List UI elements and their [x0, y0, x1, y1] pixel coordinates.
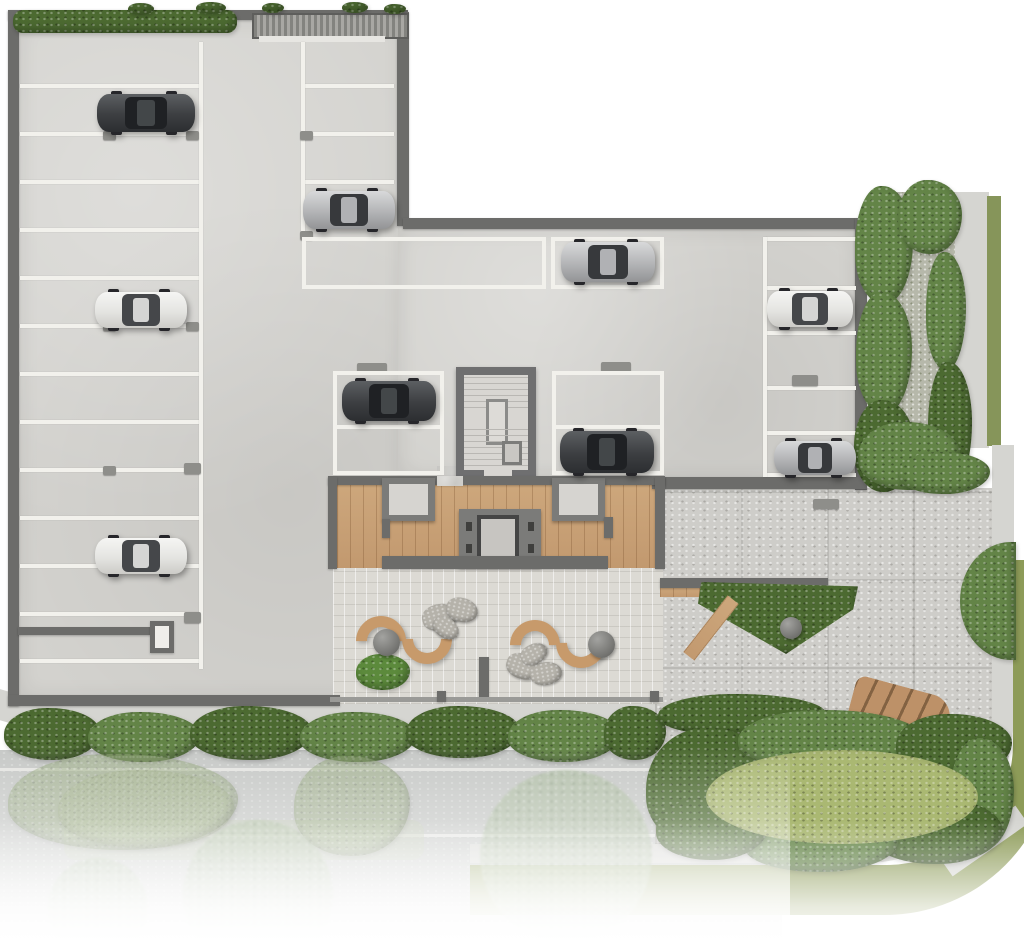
wall-leftwing-south: [8, 695, 340, 706]
car-8: [767, 289, 853, 329]
hedge-4: [262, 3, 284, 13]
hedge-18: [300, 712, 416, 762]
street-tree-2: [480, 770, 652, 942]
wall-rightwing-south: [652, 477, 867, 489]
left-wing-stripes-5: [20, 276, 201, 280]
hedge-3: [196, 2, 226, 14]
mid-column-stripes-1: [305, 84, 394, 88]
car-4: [303, 189, 395, 231]
vestibule-left: [382, 478, 435, 521]
vestibule-right-interior: [559, 484, 598, 515]
deck-east-wall: [655, 477, 665, 569]
stall-end-line-3: [763, 237, 767, 477]
elevator-shaft: [477, 515, 519, 561]
car-7: [560, 429, 654, 475]
left-wing-stripes-3: [20, 180, 201, 184]
courtyard-fence: [330, 697, 663, 702]
car-6: [561, 240, 655, 284]
stair-core: [456, 367, 536, 478]
hedge-11: [926, 252, 966, 370]
hedge-30: [706, 750, 978, 844]
hedge-5: [342, 2, 368, 13]
deck-west-wall: [328, 477, 337, 569]
hedge-33: [294, 756, 410, 856]
stall-box-divider: [337, 425, 440, 429]
hedge-19: [406, 706, 520, 758]
fence-post-1: [437, 691, 446, 702]
east-grass-strip: [987, 196, 1001, 446]
hedge-9: [856, 292, 912, 414]
car-roof: [808, 447, 823, 470]
wheel-stop-5: [103, 466, 116, 475]
hedge-8: [898, 180, 962, 254]
vestibule-left-interior: [389, 484, 428, 515]
car-roof: [599, 438, 616, 466]
hedge-2: [128, 3, 154, 15]
left-wing-stripes-7: [20, 372, 201, 376]
car-1: [97, 92, 195, 134]
wall-stub-courtyard: [479, 657, 489, 699]
left-wing-stripes-1: [20, 84, 201, 88]
entry-ramp-threshold: [259, 36, 385, 42]
car-roof: [133, 544, 150, 568]
round-planter-1: [373, 629, 400, 656]
car-roof: [600, 249, 617, 275]
wall-west: [8, 10, 19, 706]
wheel-stop-6: [184, 463, 201, 474]
hedge-14: [898, 452, 990, 494]
round-planter-3: [780, 617, 802, 639]
hedge-15: [4, 708, 100, 760]
car-roof: [802, 297, 818, 321]
left-wing-stripes-12: [20, 612, 201, 616]
mid-column-stripes-2: [305, 132, 394, 136]
hedge-34: [58, 770, 234, 848]
lobby-south-wall-bar: [382, 556, 608, 569]
car-9: [774, 439, 856, 477]
fence-post-2: [650, 691, 659, 702]
vestibule-left-fin: [382, 519, 390, 538]
vestibule-right-fin: [604, 517, 613, 538]
vestibule-right: [552, 478, 605, 521]
hedge-17: [190, 706, 312, 760]
car-roof: [133, 298, 150, 322]
car-roof: [137, 100, 155, 125]
wheel-stop-13: [813, 499, 839, 509]
wheel-stop-7: [184, 612, 201, 623]
wheel-stop-12: [792, 375, 818, 386]
hedge-6: [384, 4, 406, 14]
right-column-stripes-5: [766, 431, 856, 435]
elevator-closet-dot: [466, 544, 472, 553]
car-3: [95, 536, 187, 576]
wheel-stop-8: [300, 131, 313, 140]
marked-stall-box-1: [302, 237, 546, 289]
elevator-closet-dot: [528, 522, 534, 531]
car-2: [95, 290, 187, 330]
car-roof: [381, 388, 398, 414]
left-wing-stripes-8: [20, 420, 201, 424]
mid-column-stripes-3: [305, 180, 394, 184]
stall-end-line-1: [199, 42, 203, 669]
round-planter-2: [588, 631, 615, 658]
elevator-closet-dot: [528, 544, 534, 553]
left-wing-stripes-10: [20, 516, 201, 520]
car-5: [342, 379, 436, 423]
site-plan: [0, 0, 1024, 943]
storeroom-gate-leaf: [155, 626, 169, 648]
rock-cluster-2: [506, 644, 566, 690]
wall-rightwing-north: [403, 218, 867, 229]
elevator-closet-dot: [466, 522, 472, 531]
wall-mid-vertical: [397, 12, 409, 226]
car-roof: [341, 197, 358, 222]
left-wing-stripes-13: [20, 659, 201, 663]
rock-cluster-1: [422, 598, 482, 644]
right-column-stripes-4: [766, 386, 856, 390]
right-column-stripes-3: [766, 331, 856, 335]
right-column-stripes-1: [766, 237, 856, 241]
left-wing-stripes-4: [20, 228, 201, 232]
lobby-north-wall: [328, 476, 665, 485]
stair-service-box: [502, 441, 522, 465]
lobby-entry-gap: [437, 476, 463, 486]
wall-partition-storeroom: [18, 627, 152, 635]
wheel-stop-4: [186, 322, 199, 331]
